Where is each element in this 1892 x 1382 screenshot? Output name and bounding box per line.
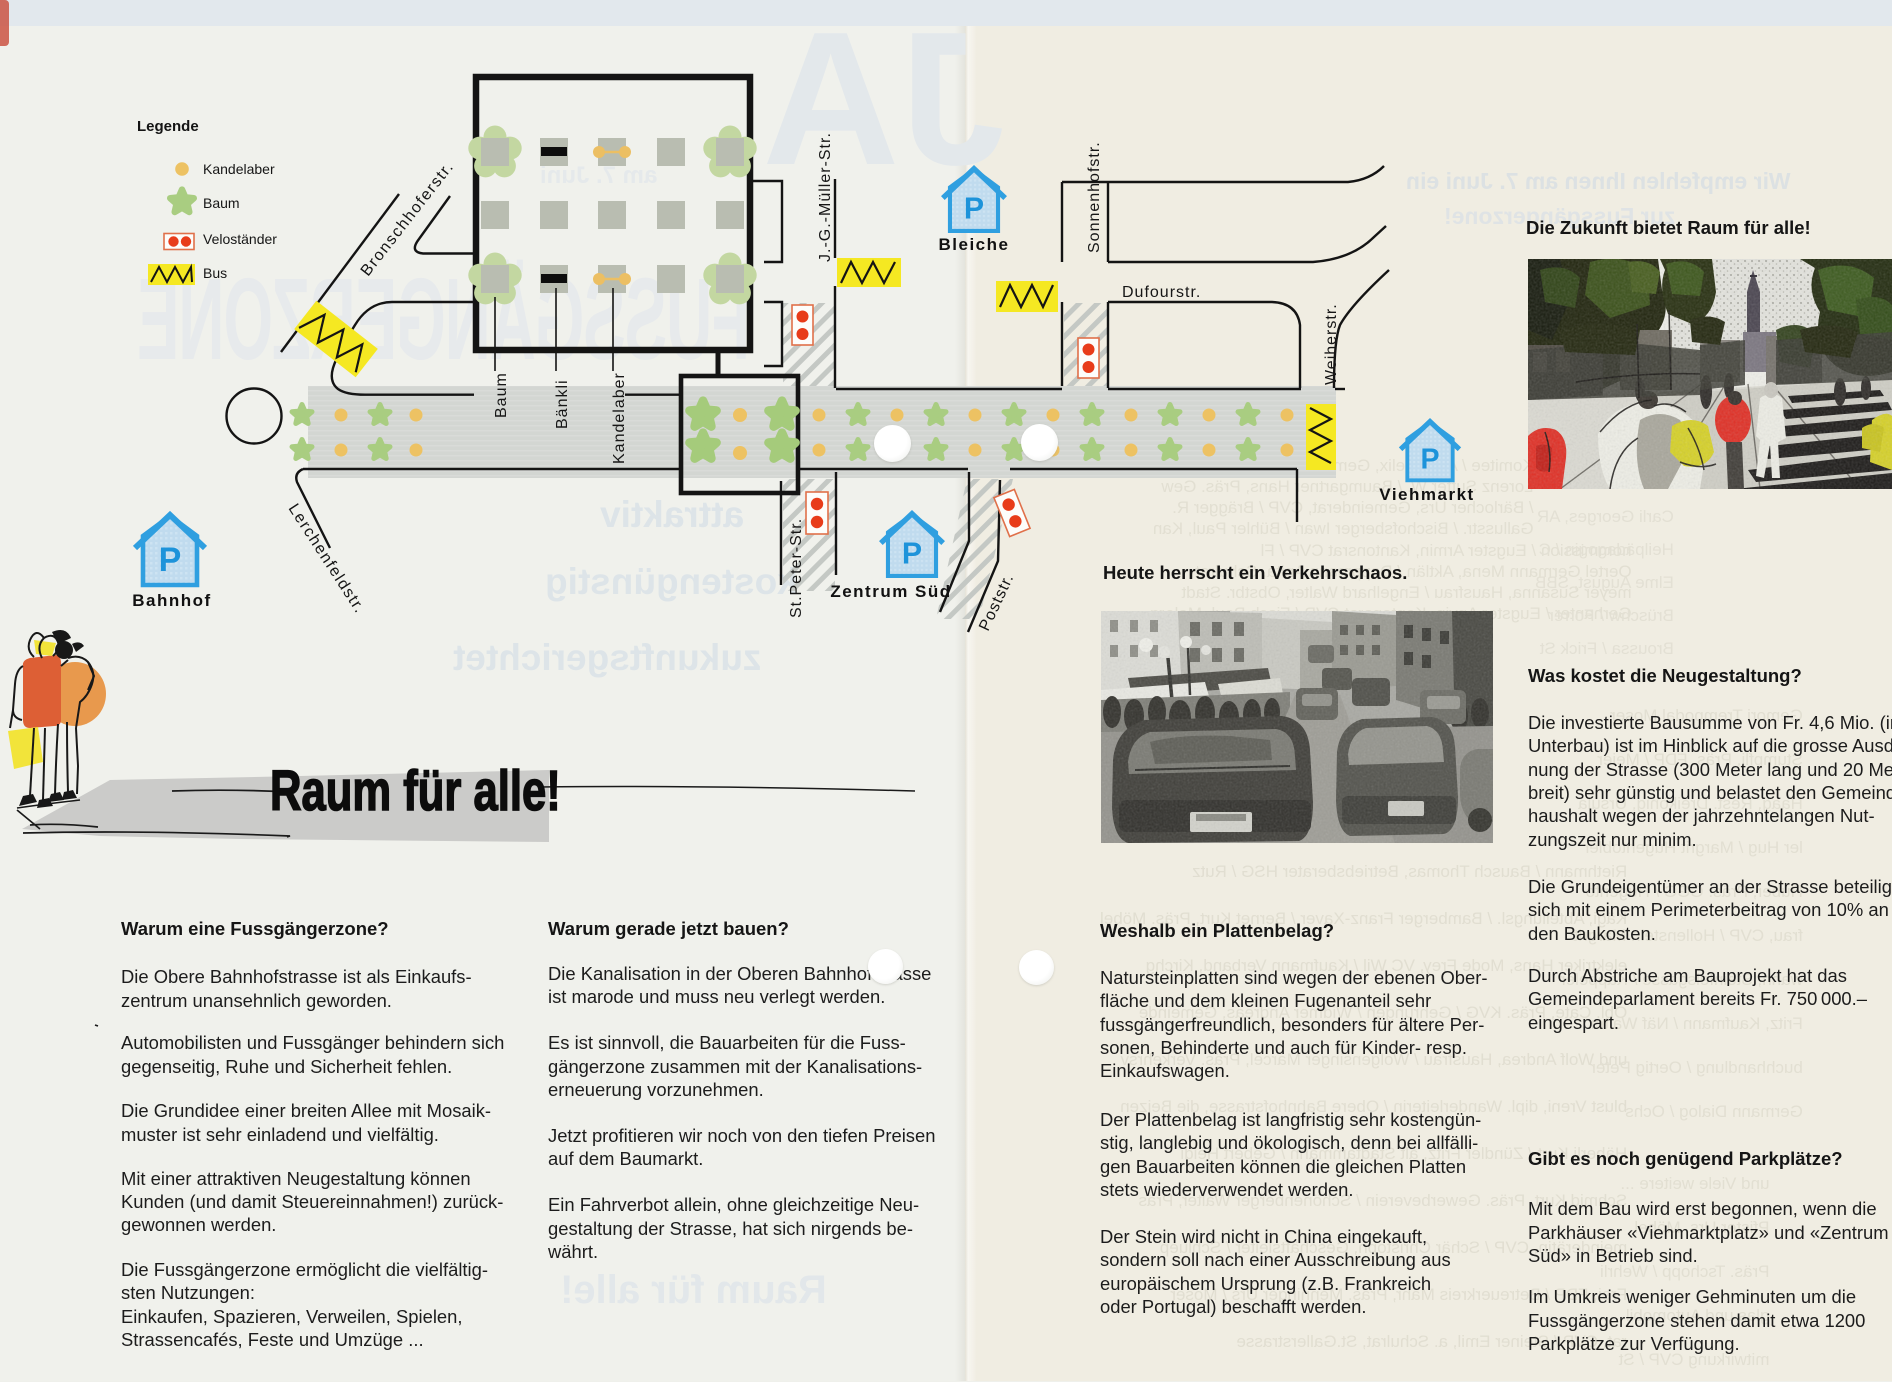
- svg-text:Sonnenhofstr.: Sonnenhofstr.: [1086, 141, 1103, 253]
- svg-text:Bronschhoferstr.: Bronschhoferstr.: [358, 158, 458, 279]
- svg-text:Bahnhof: Bahnhof: [132, 591, 211, 610]
- svg-text:Lerchenfeldstr.: Lerchenfeldstr.: [285, 501, 369, 617]
- svg-text:J.-G.-Müller-Str.: J.-G.-Müller-Str.: [817, 132, 834, 262]
- svg-text:Dufourstr.: Dufourstr.: [1122, 284, 1201, 301]
- svg-text:St.Peter-Str.: St.Peter-Str.: [788, 518, 805, 618]
- svg-text:Viehmarkt: Viehmarkt: [1379, 485, 1474, 504]
- svg-text:Bänkli: Bänkli: [554, 379, 571, 429]
- svg-text:Zentrum Süd: Zentrum Süd: [830, 582, 951, 601]
- svg-text:Weiherstr.: Weiherstr.: [1323, 303, 1340, 385]
- svg-text:Bleiche: Bleiche: [939, 235, 1010, 254]
- svg-text:Kandelaber: Kandelaber: [611, 372, 628, 464]
- svg-text:Baum: Baum: [493, 372, 510, 418]
